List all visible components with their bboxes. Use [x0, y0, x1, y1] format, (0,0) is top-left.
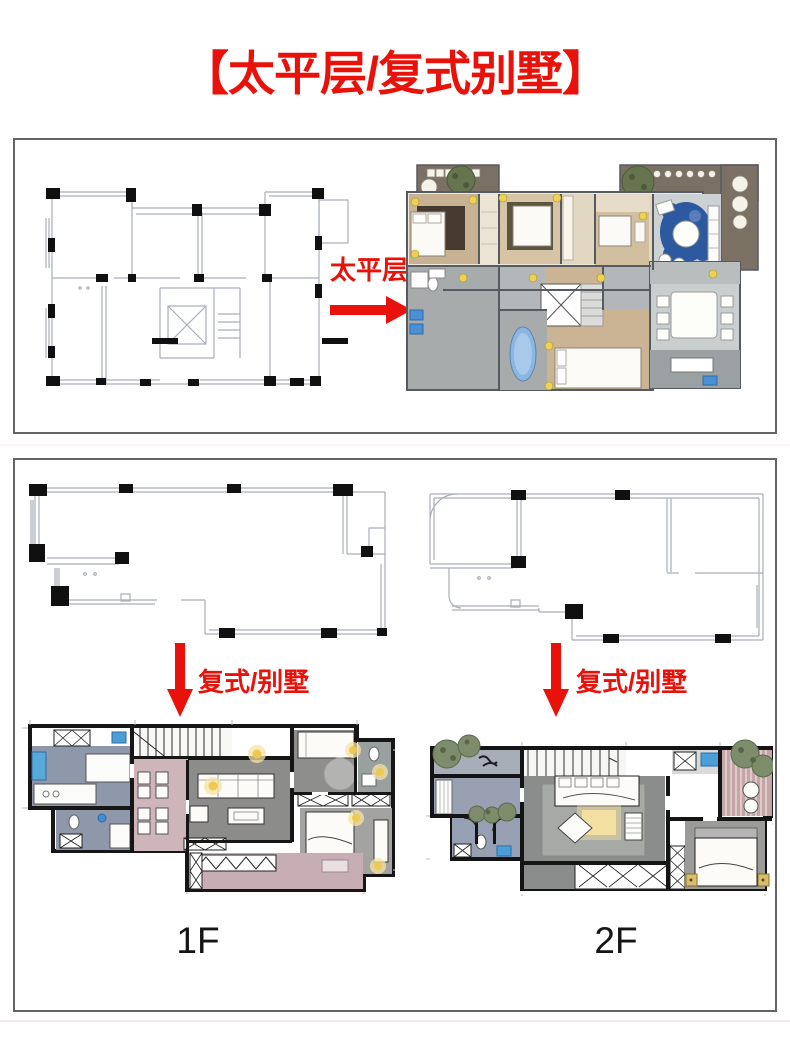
- column-blocks: [46, 188, 348, 386]
- duplex-right-line-plan: [427, 490, 767, 645]
- flat-arrow-label: 太平层: [330, 250, 408, 287]
- down-arrow-icon: [543, 643, 569, 717]
- duplex-conversion-panel: 复式/别墅 复式/别墅: [13, 458, 777, 1012]
- duplex-left-arrow-label: 复式/别墅: [198, 662, 309, 699]
- down-arrow-icon: [167, 643, 193, 717]
- flat-rendered-plan: [403, 162, 761, 394]
- floor-label-1f: 1F: [158, 920, 238, 962]
- flat-conversion-panel: 太平层: [13, 138, 777, 434]
- flat-before-line-plan: [40, 188, 350, 388]
- floor-label-2f: 2F: [576, 920, 656, 962]
- divider-faint: [0, 444, 790, 446]
- page-title: 【太平层/复式别墅】: [0, 48, 790, 100]
- column-blocks: [29, 484, 387, 638]
- column-blocks: [511, 490, 731, 643]
- right-arrow-icon: [330, 296, 412, 324]
- page: 【太平层/复式别墅】: [0, 0, 790, 1061]
- floor-plan-2f: [413, 728, 773, 900]
- divider-faint: [0, 1020, 790, 1022]
- floor-plan-1f: [22, 720, 395, 894]
- duplex-left-line-plan: [29, 484, 389, 649]
- duplex-right-arrow-label: 复式/别墅: [576, 662, 687, 699]
